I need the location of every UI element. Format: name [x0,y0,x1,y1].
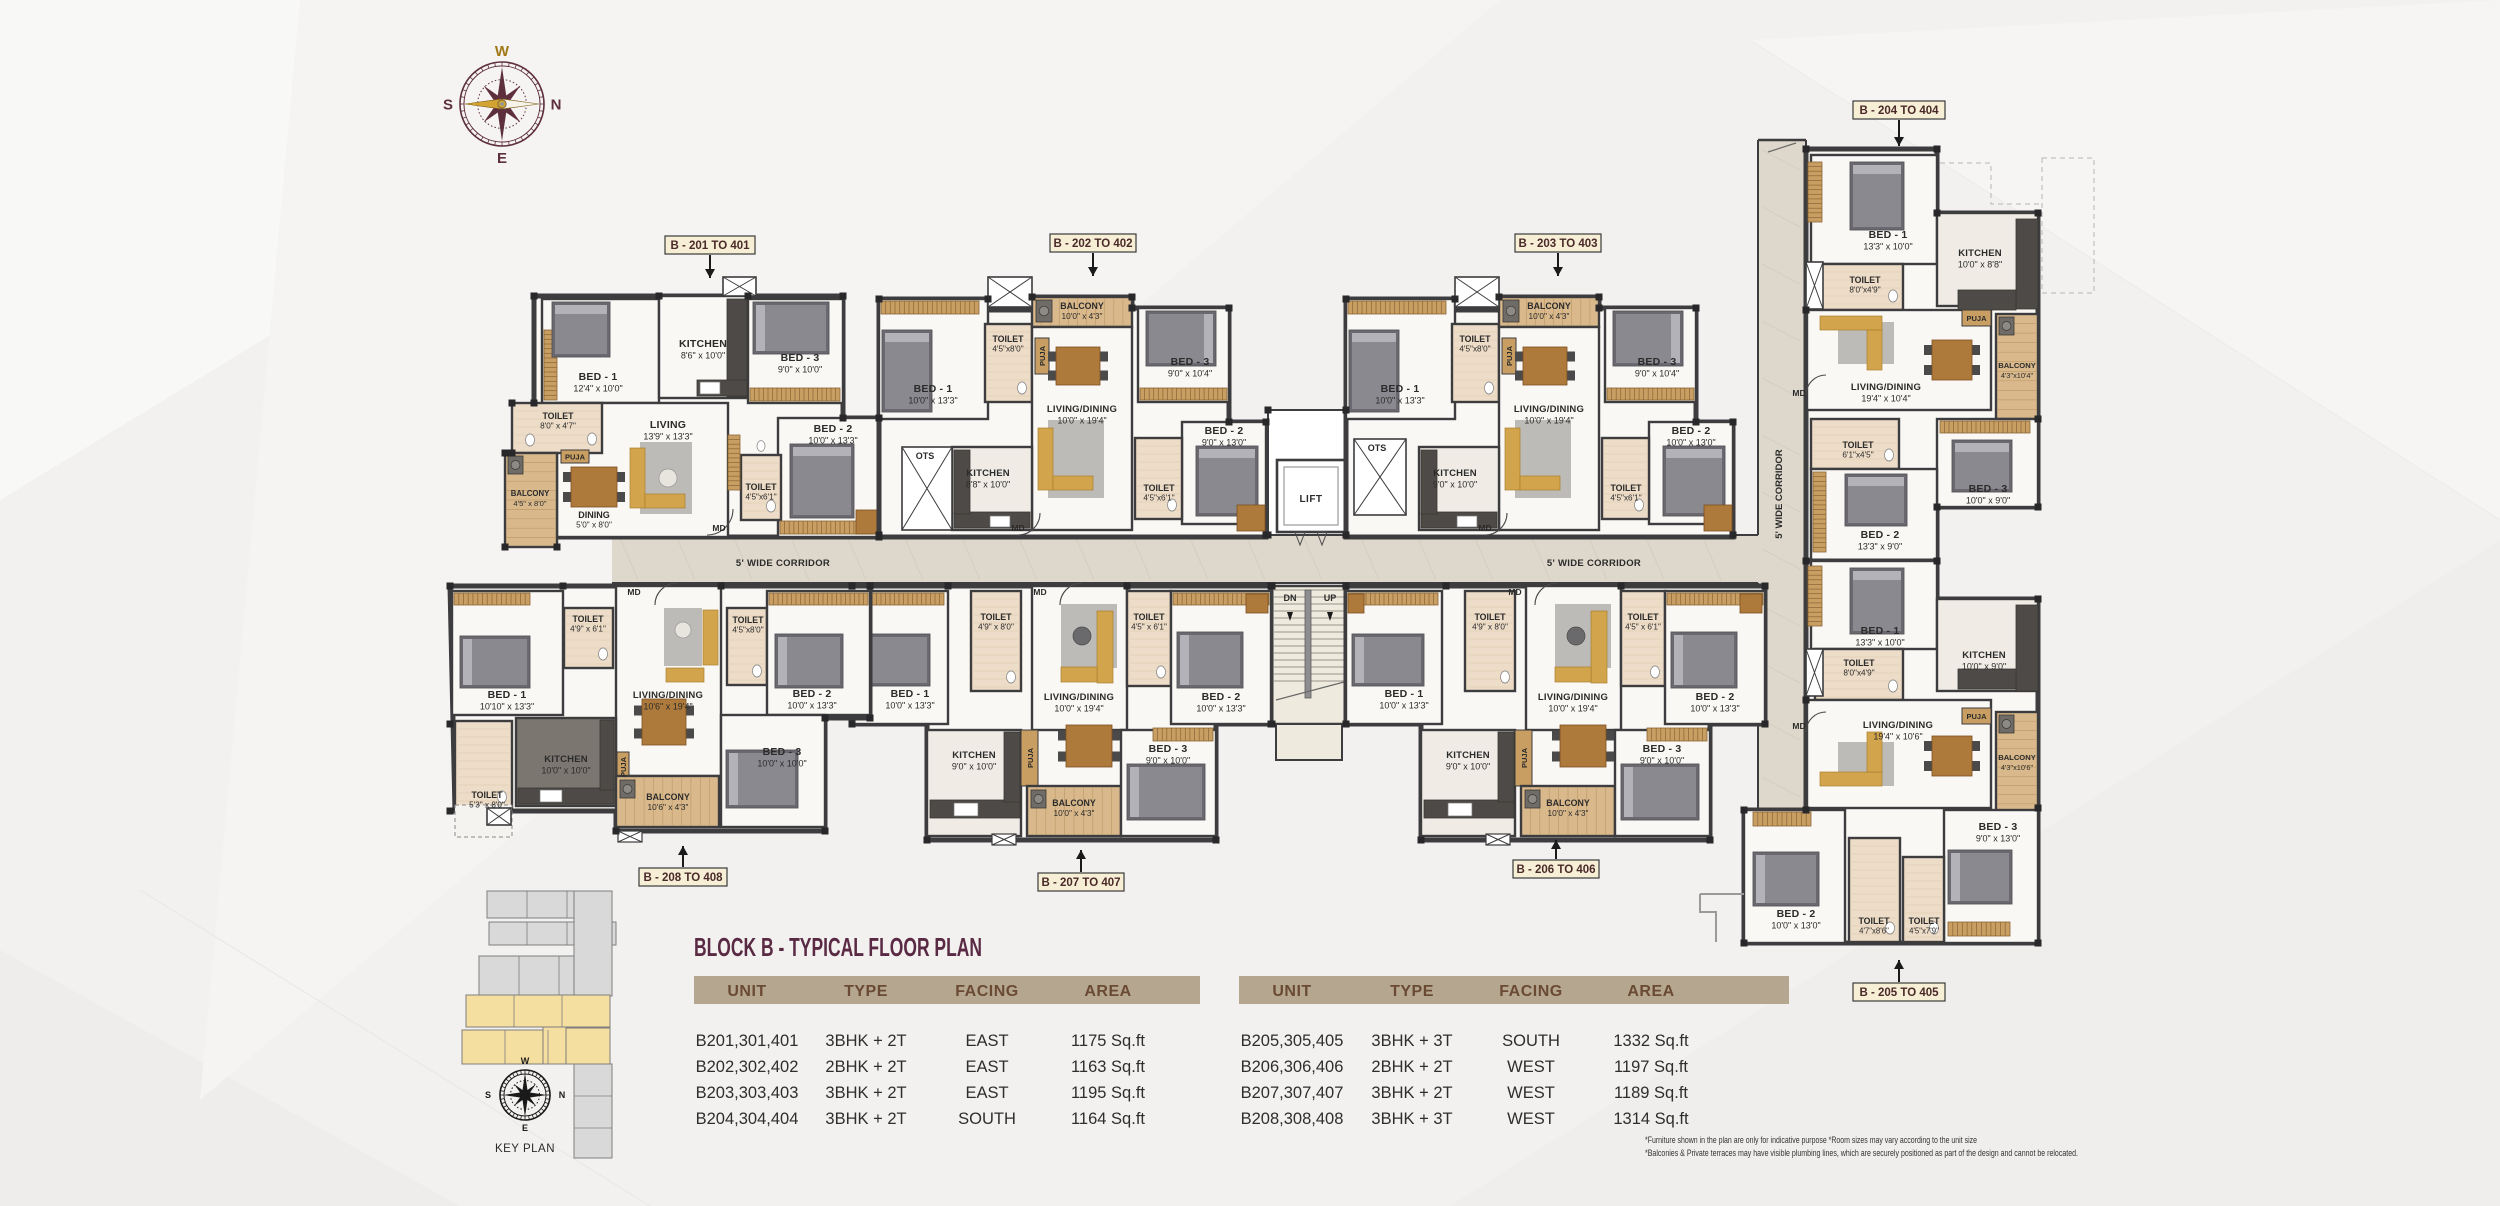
svg-text:MD: MD [1033,587,1046,597]
svg-text:B - 205 TO 405: B - 205 TO 405 [1859,987,1939,999]
svg-text:2BHK + 2T: 2BHK + 2T [825,1058,906,1076]
svg-text:4'5"x8'0": 4'5"x8'0" [1459,345,1490,354]
svg-text:LIVING/DINING: LIVING/DINING [1047,404,1117,415]
svg-text:10'0" x 10'0": 10'0" x 10'0" [757,759,806,769]
svg-text:1197 Sq.ft: 1197 Sq.ft [1614,1058,1688,1076]
svg-text:BED - 1: BED - 1 [891,688,930,700]
svg-text:10'0" x 13'3": 10'0" x 13'3" [1196,704,1245,714]
svg-text:TOILET: TOILET [992,334,1024,344]
svg-text:LIFT: LIFT [1299,494,1322,505]
svg-text:8'0"x4'9": 8'0"x4'9" [1843,669,1874,678]
svg-text:W: W [495,43,510,60]
svg-text:1164 Sq.ft: 1164 Sq.ft [1071,1110,1145,1128]
svg-text:EAST: EAST [965,1032,1008,1050]
svg-text:PUJA: PUJA [1966,712,1987,721]
svg-text:W: W [521,1056,530,1066]
svg-text:BALCONY: BALCONY [1060,301,1104,311]
svg-text:E: E [522,1123,528,1133]
svg-text:10'0" x 13'3": 10'0" x 13'3" [1375,396,1424,406]
svg-text:MD: MD [1792,721,1805,731]
svg-text:BED - 3: BED - 3 [763,746,802,758]
svg-text:TOILET: TOILET [1474,612,1506,622]
svg-text:B201,301,401: B201,301,401 [696,1032,799,1050]
svg-text:B206,306,406: B206,306,406 [1241,1058,1344,1076]
svg-text:10'0" x 19'4": 10'0" x 19'4" [1054,704,1103,714]
svg-text:9'0" x 13'0": 9'0" x 13'0" [1976,834,2020,844]
svg-text:1163 Sq.ft: 1163 Sq.ft [1071,1058,1145,1076]
svg-text:PUJA: PUJA [1966,314,1987,323]
svg-text:BED - 2: BED - 2 [1777,908,1816,920]
svg-text:LIVING/DINING: LIVING/DINING [633,690,703,701]
svg-text:TOILET: TOILET [1908,916,1940,926]
svg-text:N: N [559,1090,566,1100]
svg-text:TOILET: TOILET [471,790,503,800]
svg-text:BED - 2: BED - 2 [1205,425,1244,437]
svg-text:5'3" x 8'0": 5'3" x 8'0" [469,801,505,810]
svg-text:PUJA: PUJA [1026,747,1035,768]
svg-text:BED - 1: BED - 1 [488,689,527,701]
svg-text:KITCHEN: KITCHEN [679,338,727,350]
svg-text:B - 204 TO 404: B - 204 TO 404 [1859,105,1939,117]
svg-text:BED - 3: BED - 3 [1643,743,1682,755]
svg-text:UNIT: UNIT [1272,983,1311,1000]
svg-text:13'9" x 13'3": 13'9" x 13'3" [643,432,692,442]
svg-text:TOILET: TOILET [572,614,604,624]
svg-text:BED - 3: BED - 3 [781,352,820,364]
svg-text:LIVING/DINING: LIVING/DINING [1863,720,1933,731]
svg-text:WEST: WEST [1507,1110,1555,1128]
svg-text:BED - 1: BED - 1 [914,383,953,395]
svg-text:PUJA: PUJA [619,756,628,777]
svg-text:4'7"x8'6": 4'7"x8'6" [1859,927,1889,936]
svg-text:B208,308,408: B208,308,408 [1241,1110,1344,1128]
svg-text:BED - 1: BED - 1 [1869,229,1908,241]
svg-text:TOILET: TOILET [1858,916,1890,926]
svg-text:3BHK + 3T: 3BHK + 3T [1371,1110,1452,1128]
svg-text:UP: UP [1324,593,1337,603]
svg-text:1332 Sq.ft: 1332 Sq.ft [1613,1032,1689,1050]
svg-text:BED - 3: BED - 3 [1149,743,1188,755]
svg-text:MD: MD [1792,388,1805,398]
svg-text:BED - 1: BED - 1 [579,371,618,383]
svg-text:4'9" x 8'0": 4'9" x 8'0" [978,623,1014,632]
svg-text:8'8" x 10'0": 8'8" x 10'0" [966,480,1010,490]
svg-text:B - 202 TO 402: B - 202 TO 402 [1053,238,1132,250]
svg-text:TOILET: TOILET [1842,440,1874,450]
svg-text:OTS: OTS [916,451,935,461]
svg-text:KITCHEN: KITCHEN [1446,750,1490,761]
svg-text:19'4" x 10'6": 19'4" x 10'6" [1873,732,1922,742]
svg-text:B204,304,404: B204,304,404 [696,1110,799,1128]
svg-text:WEST: WEST [1507,1084,1555,1102]
svg-text:5' WIDE CORRIDOR: 5' WIDE CORRIDOR [1774,449,1785,538]
svg-text:10'0" x 4'3": 10'0" x 4'3" [1062,311,1103,321]
svg-text:LIVING/DINING: LIVING/DINING [1044,692,1114,703]
svg-text:E: E [497,150,507,167]
svg-text:EAST: EAST [965,1058,1008,1076]
svg-text:3BHK + 2T: 3BHK + 2T [1371,1084,1452,1102]
svg-text:10'0" x 13'3": 10'0" x 13'3" [908,396,957,406]
svg-text:MD: MD [1478,523,1491,533]
svg-text:10'0" x 13'3": 10'0" x 13'3" [1379,701,1428,711]
svg-text:4'5"x8'0": 4'5"x8'0" [992,345,1023,354]
svg-text:N: N [551,96,562,113]
svg-text:5' WIDE CORRIDOR: 5' WIDE CORRIDOR [736,558,830,569]
svg-text:S: S [443,96,453,113]
svg-text:BED - 2: BED - 2 [814,423,853,435]
svg-text:10'0" x 13'3": 10'0" x 13'3" [787,701,836,711]
svg-text:KITCHEN: KITCHEN [1958,248,2002,259]
svg-text:TOILET: TOILET [1143,483,1175,493]
svg-text:TOILET: TOILET [980,612,1012,622]
svg-text:5' WIDE CORRIDOR: 5' WIDE CORRIDOR [1547,558,1641,569]
svg-text:4'3"x10'6": 4'3"x10'6" [2001,763,2034,772]
svg-text:9'0" x 10'4": 9'0" x 10'4" [1168,369,1212,379]
svg-text:DN: DN [1284,593,1297,603]
svg-text:10'0" x 9'0": 10'0" x 9'0" [1966,496,2010,506]
svg-text:B - 206 TO 406: B - 206 TO 406 [1516,864,1595,876]
svg-text:BALCONY: BALCONY [1527,301,1571,311]
svg-text:MD: MD [627,587,640,597]
svg-text:9'0" x 10'0": 9'0" x 10'0" [1446,762,1490,772]
svg-text:4'3"x10'4": 4'3"x10'4" [2001,371,2034,380]
svg-text:1314 Sq.ft: 1314 Sq.ft [1613,1110,1689,1128]
svg-text:10'0" x 8'8": 10'0" x 8'8" [1958,260,2002,270]
svg-text:9'0" x 10'0": 9'0" x 10'0" [952,762,996,772]
svg-text:10'0" x 10'0": 10'0" x 10'0" [541,766,590,776]
svg-text:TOILET: TOILET [1849,275,1881,285]
svg-text:BALCONY: BALCONY [1546,798,1590,808]
svg-text:B - 203 TO 403: B - 203 TO 403 [1518,238,1597,250]
svg-text:3BHK + 2T: 3BHK + 2T [825,1084,906,1102]
svg-text:9'0" x 10'0": 9'0" x 10'0" [1640,756,1684,766]
svg-text:12'4" x 10'0": 12'4" x 10'0" [573,384,622,394]
svg-text:3BHK + 2T: 3BHK + 2T [825,1110,906,1128]
svg-text:AREA: AREA [1084,983,1131,1000]
svg-text:4'9" x 8'0": 4'9" x 8'0" [1472,623,1508,632]
svg-text:LIVING/DINING: LIVING/DINING [1538,692,1608,703]
svg-text:OTS: OTS [1368,443,1387,453]
svg-text:WEST: WEST [1507,1058,1555,1076]
svg-text:BED - 2: BED - 2 [1672,425,1711,437]
svg-text:TOILET: TOILET [542,411,574,421]
svg-text:BALCONY: BALCONY [511,489,550,498]
svg-text:9'0" x 10'4": 9'0" x 10'4" [1635,369,1679,379]
svg-text:LIVING: LIVING [650,419,686,431]
svg-text:2BHK + 2T: 2BHK + 2T [1371,1058,1452,1076]
svg-text:S: S [485,1090,491,1100]
svg-text:BLOCK B - TYPICAL FLOOR PLAN: BLOCK B - TYPICAL FLOOR PLAN [694,932,982,962]
svg-text:10'0" x 13'0": 10'0" x 13'0" [1771,921,1820,931]
svg-text:KITCHEN: KITCHEN [544,754,588,765]
svg-text:KITCHEN: KITCHEN [1433,468,1477,479]
svg-text:TOILET: TOILET [732,615,764,625]
svg-text:BED - 2: BED - 2 [1696,691,1735,703]
svg-text:3BHK + 3T: 3BHK + 3T [1371,1032,1452,1050]
svg-text:BED - 2: BED - 2 [1202,691,1241,703]
svg-text:4'5"x6'1": 4'5"x6'1" [1610,494,1641,503]
svg-text:8'6" x 10'0": 8'6" x 10'0" [681,351,725,361]
svg-text:*Balconies & Private terraces: *Balconies & Private terraces may have v… [1645,1148,2078,1158]
svg-text:13'3" x 10'0": 13'3" x 10'0" [1863,242,1912,252]
svg-text:10'6" x 4'3": 10'6" x 4'3" [648,802,689,812]
svg-text:B203,303,403: B203,303,403 [696,1084,799,1102]
svg-text:10'0" x 13'3": 10'0" x 13'3" [1690,704,1739,714]
svg-text:BALCONY: BALCONY [646,792,690,802]
svg-text:3BHK + 2T: 3BHK + 2T [825,1032,906,1050]
svg-text:4'5" x 6'1": 4'5" x 6'1" [1625,623,1661,632]
svg-text:10'0" x 4'3": 10'0" x 4'3" [1548,808,1589,818]
svg-text:FACING: FACING [955,983,1018,1000]
svg-text:KITCHEN: KITCHEN [1962,650,2006,661]
svg-text:TOILET: TOILET [745,482,777,492]
svg-text:TYPE: TYPE [1390,983,1434,1000]
svg-text:9'0" x 10'0": 9'0" x 10'0" [778,365,822,375]
svg-text:4'5"x8'0": 4'5"x8'0" [732,626,763,635]
svg-text:8'0" x 4'7": 8'0" x 4'7" [540,422,576,431]
svg-text:10'0" x 13'3": 10'0" x 13'3" [885,701,934,711]
svg-text:1195 Sq.ft: 1195 Sq.ft [1071,1084,1145,1102]
svg-text:PUJA: PUJA [1520,747,1529,768]
svg-text:BED - 3: BED - 3 [1979,821,2018,833]
svg-text:LIVING/DINING: LIVING/DINING [1514,404,1584,415]
svg-text:TOILET: TOILET [1627,612,1659,622]
svg-text:B205,305,405: B205,305,405 [1241,1032,1344,1050]
svg-text:BED - 1: BED - 1 [1385,688,1424,700]
svg-text:LIVING/DINING: LIVING/DINING [1851,382,1921,393]
svg-text:10'0" x 13'3": 10'0" x 13'3" [808,436,857,446]
svg-text:B202,302,402: B202,302,402 [696,1058,799,1076]
svg-text:PUJA: PUJA [1505,345,1514,366]
svg-text:PUJA: PUJA [565,453,586,462]
svg-text:MD: MD [712,523,725,533]
svg-text:KITCHEN: KITCHEN [966,468,1010,479]
svg-text:4'5"x6'1": 4'5"x6'1" [745,493,776,502]
svg-text:BED - 2: BED - 2 [793,688,832,700]
svg-text:4'5" x 6'1": 4'5" x 6'1" [1131,623,1167,632]
svg-text:6'1"x4'5": 6'1"x4'5" [1842,451,1873,460]
svg-text:10'0" x 4'3": 10'0" x 4'3" [1054,808,1095,818]
svg-text:19'4" x 10'4": 19'4" x 10'4" [1861,394,1910,404]
svg-text:UNIT: UNIT [727,983,766,1000]
svg-text:10'0" x 19'4": 10'0" x 19'4" [1524,416,1573,426]
svg-text:TOILET: TOILET [1133,612,1165,622]
svg-text:BED - 2: BED - 2 [1861,529,1900,541]
svg-text:5'0" x 8'0": 5'0" x 8'0" [576,521,612,530]
svg-text:PUJA: PUJA [1038,345,1047,366]
svg-text:1189 Sq.ft: 1189 Sq.ft [1614,1084,1688,1102]
svg-text:13'3" x 10'0": 13'3" x 10'0" [1855,638,1904,648]
svg-text:EAST: EAST [965,1084,1008,1102]
svg-text:9'0" x 10'0": 9'0" x 10'0" [1433,480,1477,490]
svg-text:AREA: AREA [1627,983,1674,1000]
svg-text:B - 207 TO 407: B - 207 TO 407 [1041,877,1120,889]
svg-text:BALCONY: BALCONY [1998,753,2036,762]
svg-text:10'0" x 4'3": 10'0" x 4'3" [1529,311,1570,321]
svg-text:TOILET: TOILET [1843,658,1875,668]
svg-text:10'0" x 19'4": 10'0" x 19'4" [1548,704,1597,714]
svg-text:*Furniture shown in the plan a: *Furniture shown in the plan are only fo… [1645,1135,1977,1145]
svg-text:4'5"x7'9": 4'5"x7'9" [1909,927,1939,936]
svg-text:MD: MD [1011,523,1024,533]
svg-text:9'0" x 13'0": 9'0" x 13'0" [1202,438,1246,448]
svg-text:10'0" x 13'0": 10'0" x 13'0" [1666,438,1715,448]
svg-text:1175 Sq.ft: 1175 Sq.ft [1071,1032,1145,1050]
svg-text:TOILET: TOILET [1459,334,1491,344]
svg-text:SOUTH: SOUTH [1502,1032,1560,1050]
svg-text:4'9" x 6'1": 4'9" x 6'1" [570,625,606,634]
svg-text:KITCHEN: KITCHEN [952,750,996,761]
svg-text:B - 201 TO 401: B - 201 TO 401 [670,240,750,252]
svg-text:DINING: DINING [578,510,610,520]
svg-text:BED - 1: BED - 1 [1861,625,1900,637]
svg-text:10'0" x 9'0": 10'0" x 9'0" [1962,662,2006,672]
svg-text:BED - 3: BED - 3 [1638,356,1677,368]
svg-text:4'5"x6'1": 4'5"x6'1" [1143,494,1174,503]
svg-text:B - 208 TO 408: B - 208 TO 408 [643,872,723,884]
svg-text:TYPE: TYPE [844,983,888,1000]
svg-text:9'0" x 10'0": 9'0" x 10'0" [1146,756,1190,766]
svg-text:4'5" x 8'0": 4'5" x 8'0" [513,499,547,508]
svg-text:10'6" x 19'4": 10'6" x 19'4" [643,702,692,712]
svg-text:BALCONY: BALCONY [1998,361,2036,370]
svg-text:13'3" x 9'0": 13'3" x 9'0" [1858,542,1902,552]
svg-text:BED - 3: BED - 3 [1969,483,2008,495]
svg-text:TOILET: TOILET [1610,483,1642,493]
svg-text:BALCONY: BALCONY [1052,798,1096,808]
svg-text:8'0"x4'9": 8'0"x4'9" [1849,286,1880,295]
svg-text:SOUTH: SOUTH [958,1110,1016,1128]
svg-text:FACING: FACING [1499,983,1562,1000]
svg-text:BED - 3: BED - 3 [1171,356,1210,368]
svg-text:MD: MD [1508,587,1521,597]
svg-text:10'10" x 13'3": 10'10" x 13'3" [480,702,534,712]
svg-text:B207,307,407: B207,307,407 [1241,1084,1344,1102]
svg-text:10'0" x 19'4": 10'0" x 19'4" [1057,416,1106,426]
svg-text:BED - 1: BED - 1 [1381,383,1420,395]
svg-text:KEY PLAN: KEY PLAN [495,1143,555,1155]
